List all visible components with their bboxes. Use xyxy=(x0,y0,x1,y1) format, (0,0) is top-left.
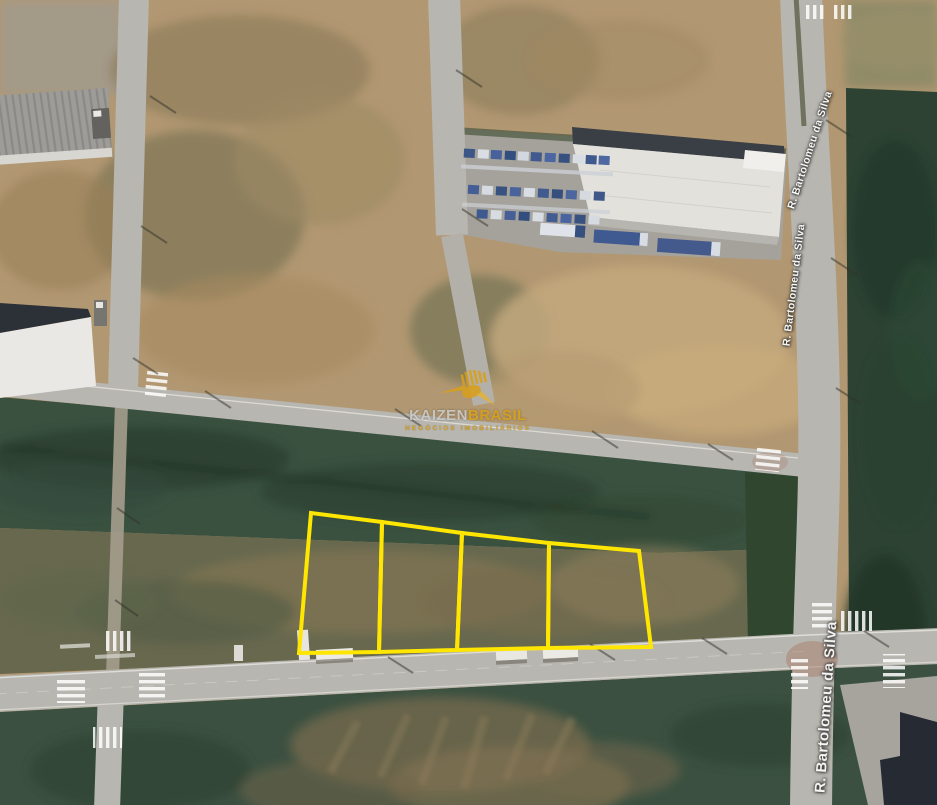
road-west xyxy=(123,0,134,390)
satellite-imagery xyxy=(0,0,937,805)
satellite-map[interactable]: KAIZENBRASIL NEGÓCIOS IMOBILIÁRIOS R. Ba… xyxy=(0,0,937,805)
road-center xyxy=(444,0,452,235)
warehouse-northwest xyxy=(0,88,112,166)
